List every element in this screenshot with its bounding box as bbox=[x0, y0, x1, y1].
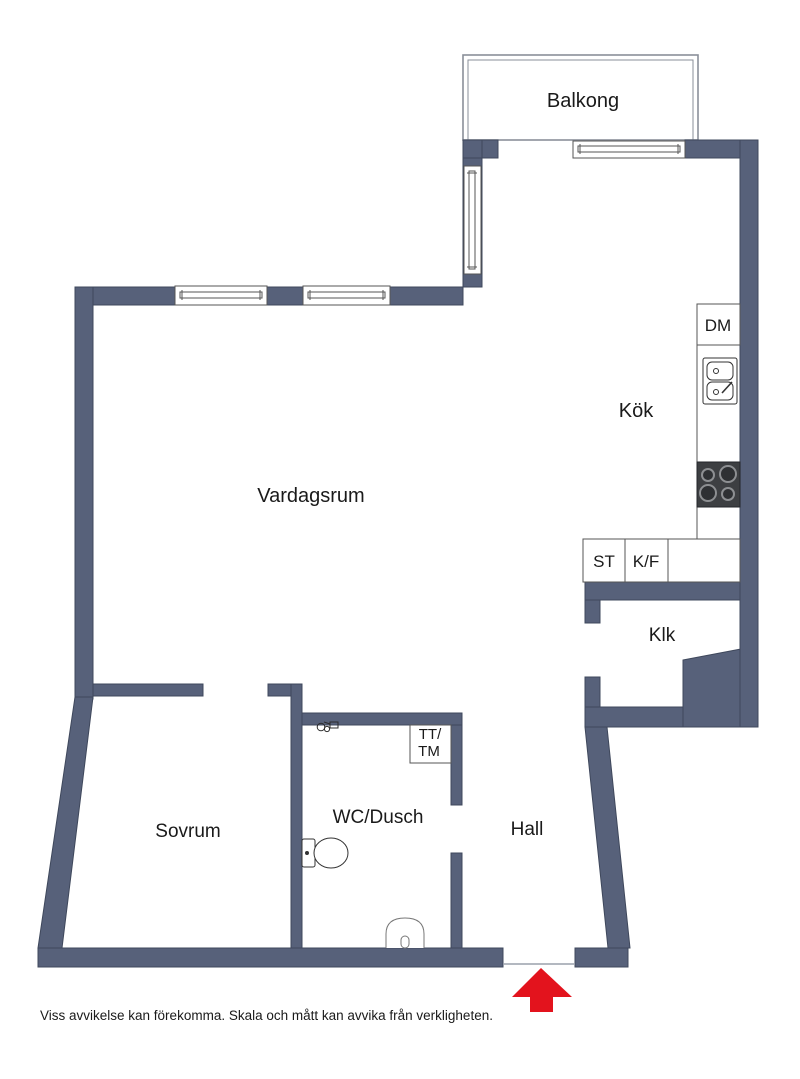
room-label-bedroom: Sovrum bbox=[155, 821, 220, 842]
room-label-bathroom: WC/Dusch bbox=[333, 807, 424, 828]
room-label-closet: Klk bbox=[649, 625, 676, 646]
wall-bathroom-right-upper bbox=[451, 725, 462, 805]
toilet-icon bbox=[302, 838, 348, 868]
entrance-arrow bbox=[512, 968, 572, 1012]
appliance-label-fridge-freezer: K/F bbox=[633, 552, 659, 571]
appliance-label-dishwasher: DM bbox=[705, 316, 731, 335]
window bbox=[464, 166, 481, 274]
wall-bedroom-bathroom bbox=[291, 684, 302, 948]
room-label-kitchen: Kök bbox=[619, 400, 654, 422]
wall-closet-slant bbox=[683, 649, 741, 727]
disclaimer-text: Viss avvikelse kan förekomma. Skala och … bbox=[40, 1008, 493, 1023]
counter-box bbox=[668, 539, 740, 582]
room-label-balcony: Balkong bbox=[547, 90, 619, 112]
wall-right-outer bbox=[740, 140, 758, 727]
kitchen-sink-icon bbox=[703, 358, 737, 404]
appliance-label-dryer-line1: TT/ bbox=[419, 726, 442, 743]
wall-hall-right-slanted bbox=[585, 727, 630, 948]
room-label-hall: Hall bbox=[511, 819, 544, 840]
wall-bathroom-right-lower bbox=[451, 853, 462, 948]
wall-bathroom-top bbox=[302, 713, 462, 725]
window bbox=[303, 286, 390, 305]
floor-plan-canvas: Balkong Kök Vardagsrum Klk Sovrum WC/Dus… bbox=[0, 0, 800, 1079]
wall-closet-top bbox=[585, 582, 758, 600]
appliance-label-dryer-line2: TM bbox=[418, 743, 440, 760]
wall-bedroom-top bbox=[93, 684, 203, 696]
window bbox=[573, 141, 685, 158]
stove-icon bbox=[697, 462, 740, 507]
window bbox=[175, 286, 267, 305]
wall-bottom-right bbox=[575, 948, 628, 967]
floor-plan-page: Balkong Kök Vardagsrum Klk Sovrum WC/Dus… bbox=[0, 0, 800, 1079]
wall-left-slanted bbox=[38, 697, 93, 948]
wall-top-livingroom bbox=[75, 287, 463, 305]
washbasin-icon bbox=[386, 918, 424, 948]
room-label-living-room: Vardagsrum bbox=[257, 485, 364, 507]
wall-bottom-left bbox=[38, 948, 503, 967]
appliance-label-cleaning-cabinet: ST bbox=[593, 552, 615, 571]
wall-left-upper bbox=[75, 287, 93, 699]
